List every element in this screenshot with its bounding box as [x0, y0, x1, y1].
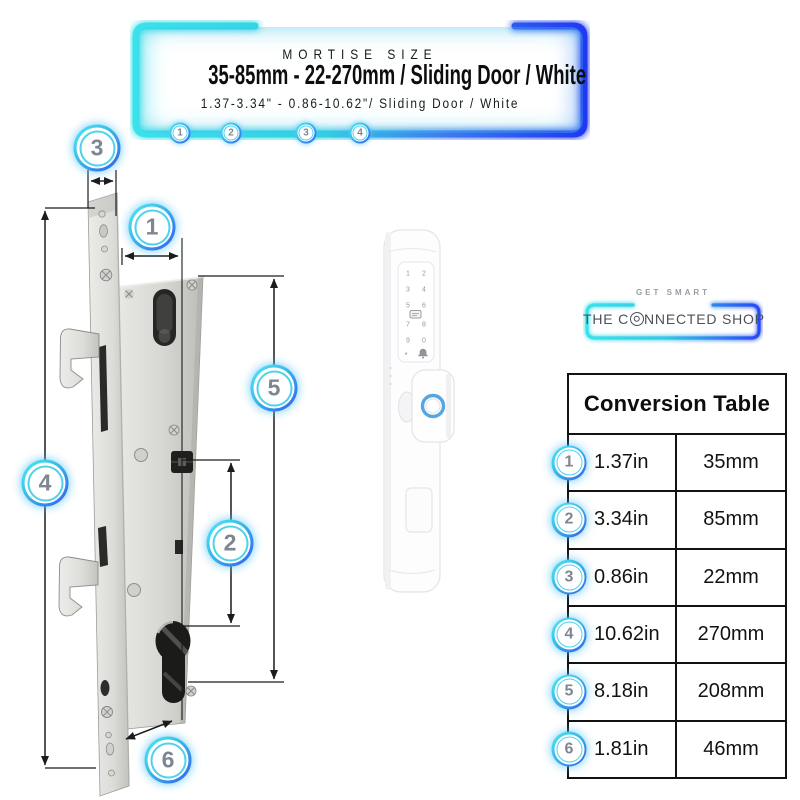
callout-number: 6 [565, 740, 574, 758]
conversion-table-title: Conversion Table [569, 375, 785, 435]
stylized-o-icon [630, 312, 644, 326]
row-callout-6: 6 [552, 732, 587, 767]
key-2: 2 [422, 271, 426, 278]
faceplate-slot-hole [106, 743, 114, 755]
faceplate-hole [109, 770, 115, 776]
table-row: 6 1.81in 46mm [569, 722, 785, 777]
callout-number: 1 [146, 214, 159, 241]
table-row: 4 10.62in 270mm [569, 607, 785, 664]
smart-lock-product: 1 2 3 4 5 6 7 8 9 0 * [376, 218, 464, 603]
mm-cell: 270mm [675, 607, 785, 662]
lock-case [117, 277, 203, 730]
table-row: 5 8.18in 208mm [569, 664, 785, 721]
mm-cell: 208mm [675, 664, 785, 719]
callout-number: 4 [39, 470, 52, 497]
key-7: 7 [406, 322, 410, 329]
case-hole [135, 449, 148, 462]
mm-cell: 46mm [675, 722, 785, 777]
diagram-callout-4: 4 [22, 460, 69, 507]
callout-number: 2 [565, 511, 574, 529]
diagram-callout-6: 6 [145, 737, 192, 784]
faceplate-slot-hole [100, 225, 108, 238]
logo-name-post: NNECTED SHOP [644, 311, 765, 327]
case-screw-icon [187, 280, 197, 290]
key-0: 0 [422, 338, 426, 345]
header-banner: MORTISE SIZE 35-85mm - 22-270mm / Slidin… [130, 20, 590, 140]
mm-cell: 35mm [675, 435, 785, 490]
row-callout-3: 3 [552, 560, 587, 595]
header-callout-4: 4 [350, 123, 371, 144]
key-1: 1 [406, 271, 410, 278]
header-callout-1: 1 [170, 123, 191, 144]
dimension-1 [122, 248, 178, 265]
logo-eyebrow: GET SMART [583, 288, 763, 297]
key-star: * [404, 351, 407, 360]
dimension-5 [188, 276, 284, 682]
diagram-callout-3: 3 [74, 125, 121, 172]
logo-name: THE CNNECTED SHOP [583, 311, 763, 327]
mm-cell: 22mm [675, 550, 785, 605]
case-hole [128, 584, 141, 597]
row-callout-1: 1 [552, 445, 587, 480]
row-callout-5: 5 [552, 674, 587, 709]
row-callout-2: 2 [552, 502, 587, 537]
key-6: 6 [422, 303, 426, 310]
case-screw-icon [169, 425, 179, 435]
header-callout-3: 3 [296, 123, 317, 144]
mm-cell: 85mm [675, 492, 785, 547]
diagram-callout-5: 5 [251, 365, 298, 412]
callout-number: 5 [565, 683, 574, 701]
hook-bolt-lower [59, 557, 98, 616]
table-row: 1 1.37in 35mm [569, 435, 785, 492]
faceplate-screw-icon [102, 707, 113, 718]
key-3: 3 [406, 287, 410, 294]
indicator-dot [390, 375, 392, 377]
logo-name-pre: THE C [583, 311, 629, 327]
key-4: 4 [422, 287, 426, 294]
key-cover-panel [406, 488, 432, 532]
indicator-dot [390, 367, 392, 369]
key-9: 9 [406, 338, 410, 345]
brand-logo: GET SMART THE CNNECTED SHOP [583, 288, 763, 346]
conversion-table: Conversion Table 1 1.37in 35mm 2 3.34in … [567, 373, 787, 779]
faceplate [59, 193, 129, 796]
case-screw-icon [186, 686, 196, 696]
faceplate-slot-hole [101, 680, 110, 696]
indicator-dot [390, 383, 392, 385]
fingerprint-ring-icon [423, 396, 444, 417]
faceplate-hole [99, 211, 105, 217]
callout-number: 4 [357, 128, 363, 139]
callout-number: 6 [162, 747, 175, 774]
header-title: 35-85mm - 22-270mm / Sliding Door / Whit… [208, 59, 512, 91]
faceplate-hole [102, 246, 108, 252]
row-callout-4: 4 [552, 617, 587, 652]
callout-number: 3 [303, 128, 309, 139]
faceplate-hole [106, 732, 112, 738]
table-row: 2 3.34in 85mm [569, 492, 785, 549]
diagram-callout-1: 1 [129, 204, 176, 251]
table-row: 3 0.86in 22mm [569, 550, 785, 607]
header-subtitle: 1.37-3.34" - 0.86-10.62"/ Sliding Door /… [158, 96, 563, 112]
header-callout-2: 2 [221, 123, 242, 144]
diagram-callout-2: 2 [207, 520, 254, 567]
faceplate-screw-icon [100, 269, 112, 281]
callout-number: 5 [268, 375, 281, 402]
callout-number: 4 [565, 626, 574, 644]
callout-number: 1 [177, 128, 183, 139]
callout-number: 2 [228, 128, 234, 139]
product-infographic: MORTISE SIZE 35-85mm - 22-270mm / Slidin… [0, 0, 800, 800]
key-8: 8 [422, 322, 426, 329]
callout-number: 2 [224, 530, 237, 557]
case-screw-icon [124, 289, 134, 299]
key-5: 5 [406, 303, 410, 310]
callout-number: 3 [91, 135, 104, 162]
callout-number: 3 [565, 568, 574, 586]
rfid-card-icon [410, 311, 421, 319]
callout-number: 1 [565, 454, 574, 472]
keypad: 1 2 3 4 5 6 7 8 9 0 * [398, 262, 434, 362]
